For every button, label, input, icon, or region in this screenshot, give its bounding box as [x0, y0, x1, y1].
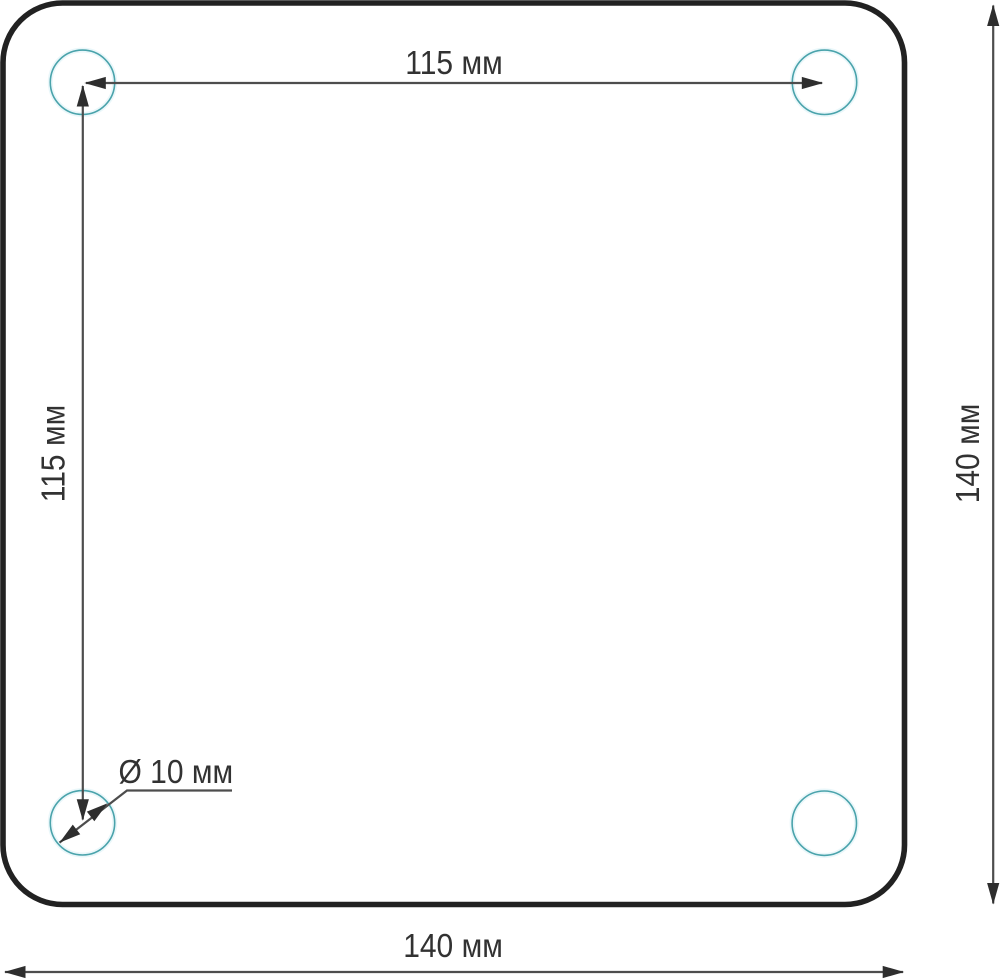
svg-text:115 мм: 115 мм: [34, 405, 72, 502]
svg-text:115 мм: 115 мм: [405, 43, 502, 81]
svg-text:140 мм: 140 мм: [403, 926, 503, 964]
svg-text:Ø 10 мм: Ø 10 мм: [119, 752, 234, 790]
svg-text:140 мм: 140 мм: [948, 404, 986, 504]
